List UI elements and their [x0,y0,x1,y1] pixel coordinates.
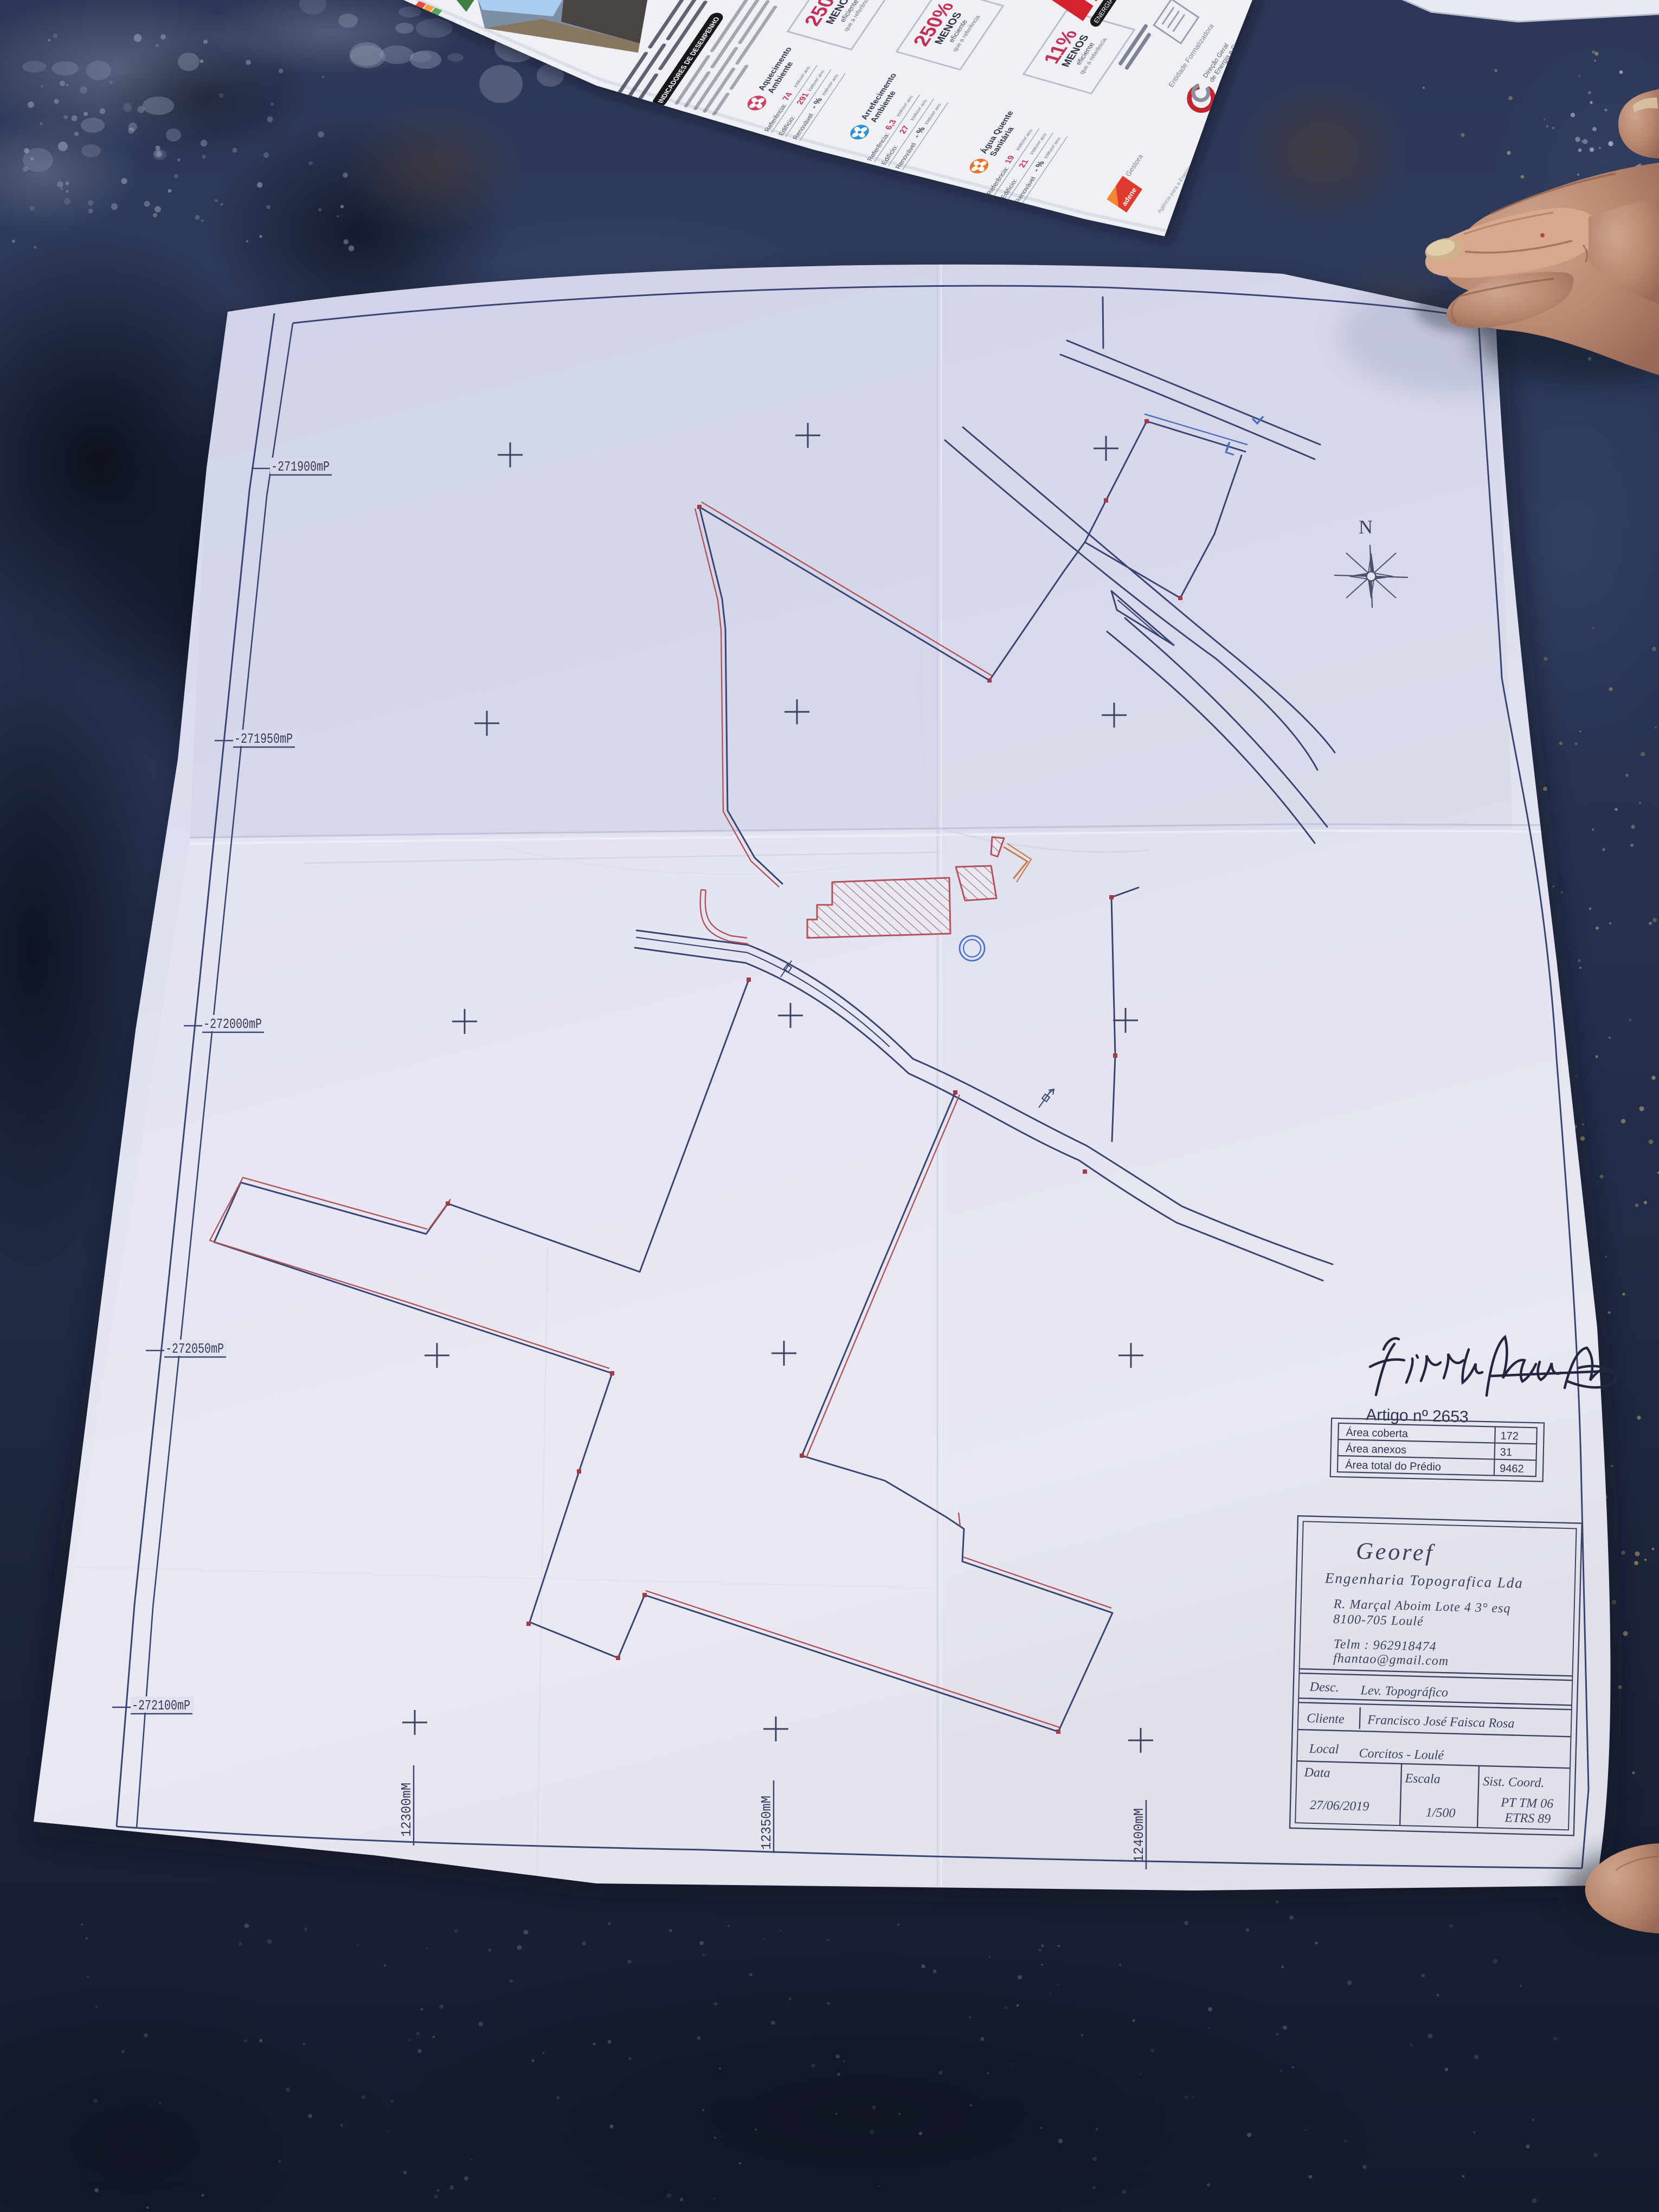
svg-text:Georef: Georef [1355,1538,1436,1566]
svg-text:Área anexos: Área anexos [1346,1442,1407,1456]
svg-text:31: 31 [1500,1446,1513,1458]
svg-text:Sist. Coord.: Sist. Coord. [1483,1774,1545,1790]
svg-text:Desc.: Desc. [1309,1680,1339,1695]
svg-text:Lev. Topográfico: Lev. Topográfico [1360,1683,1448,1700]
svg-text:27/06/2019: 27/06/2019 [1310,1798,1369,1814]
svg-text:N: N [1359,516,1373,538]
svg-text:Área coberta: Área coberta [1346,1426,1409,1440]
svg-text:12400mM: 12400mM [1131,1808,1147,1862]
svg-text:Data: Data [1303,1765,1330,1780]
svg-text:Escala: Escala [1404,1771,1441,1786]
svg-text:9462: 9462 [1500,1463,1524,1475]
svg-text:-272000mP: -272000mP [203,1016,262,1032]
svg-text:Local: Local [1308,1742,1339,1757]
svg-text:172: 172 [1500,1430,1519,1443]
svg-text:ETRS 89: ETRS 89 [1504,1811,1551,1826]
svg-text:-272100mP: -272100mP [132,1697,190,1714]
svg-text:8100-705 Loulé: 8100-705 Loulé [1333,1612,1424,1629]
svg-text:-271950mP: -271950mP [234,731,293,747]
svg-text:Corcitos - Loulé: Corcitos - Loulé [1359,1746,1444,1763]
svg-text:-271900mP: -271900mP [271,459,330,475]
svg-text:Área total do Prédio: Área total do Prédio [1345,1458,1441,1473]
svg-text:12300mM: 12300mM [398,1783,415,1837]
svg-text:-272050mP: -272050mP [165,1341,224,1357]
svg-text:PT TM 06: PT TM 06 [1500,1796,1554,1811]
svg-text:1/500: 1/500 [1425,1805,1455,1820]
svg-text:Cliente: Cliente [1307,1712,1345,1727]
svg-text:Artigo nº 2653: Artigo nº 2653 [1366,1406,1469,1426]
svg-text:12350mM: 12350mM [758,1796,775,1850]
